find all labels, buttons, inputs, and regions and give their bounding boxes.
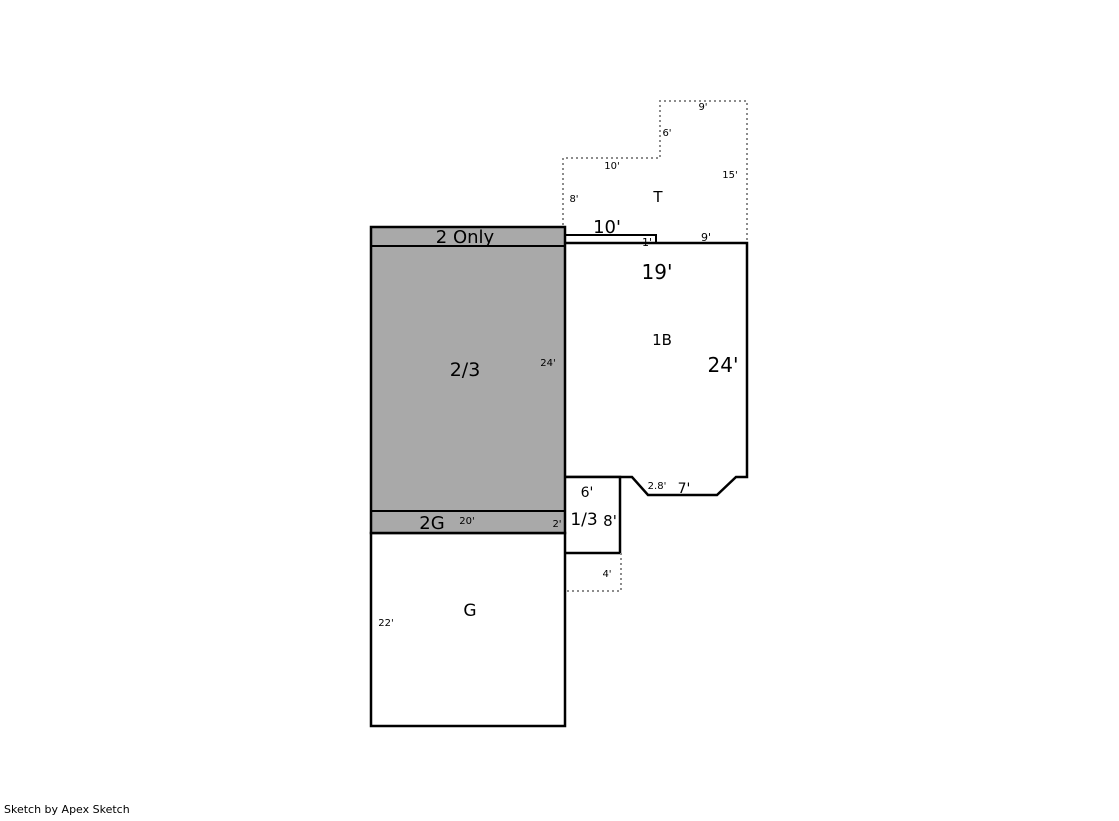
oneb-dim-strip-height: 1' [642,236,652,249]
attic-label: T [652,188,663,206]
garage-upper-dim-width: 20' [459,516,474,527]
one-third-dim-width: 6' [581,485,594,501]
floorplan-sketch: 9' 6' 10' 15' 8' T 10' 1' 9' 19' 1B 24' … [0,0,1119,821]
one-third-dim-height: 8' [603,512,617,530]
upper-strip-label: 2 Only [436,227,495,248]
attic-dim-upper: 10' [604,161,619,172]
attic-dim-top: 9' [698,102,707,113]
oneb-dim-top-right: 9' [701,231,711,244]
two-story-label: 2/3 [450,359,481,381]
garage-dim-left: 22' [378,618,393,629]
sketch-canvas: 9' 6' 10' 15' 8' T 10' 1' 9' 19' 1B 24' … [0,0,1119,821]
attic-dim-right: 15' [722,170,737,181]
attic-dotted-outline [563,101,747,243]
oneb-dim-width: 19' [642,260,673,284]
two-story-dim-right: 24' [540,358,555,369]
attic-dim-left: 8' [569,194,578,205]
bay-dim-diagonal: 2.8' [648,481,667,492]
one-third-label: 1/3 [570,510,597,530]
attic-dim-step: 6' [662,128,671,139]
oneb-dim-strip-width: 10' [593,217,621,238]
sketch-credit: Sketch by Apex Sketch [4,803,130,816]
oneb-label: 1B [652,331,672,349]
stoop-dotted-outline [564,553,621,591]
bay-dim-width: 7' [678,481,691,497]
garage-label: G [463,601,476,621]
stoop-dim-width: 4' [602,569,611,580]
oneb-dim-height: 24' [708,353,739,377]
garage-upper-label: 2G [419,513,444,534]
garage-upper-dim-height: 2' [552,519,561,530]
area-garage-outline [371,533,565,726]
